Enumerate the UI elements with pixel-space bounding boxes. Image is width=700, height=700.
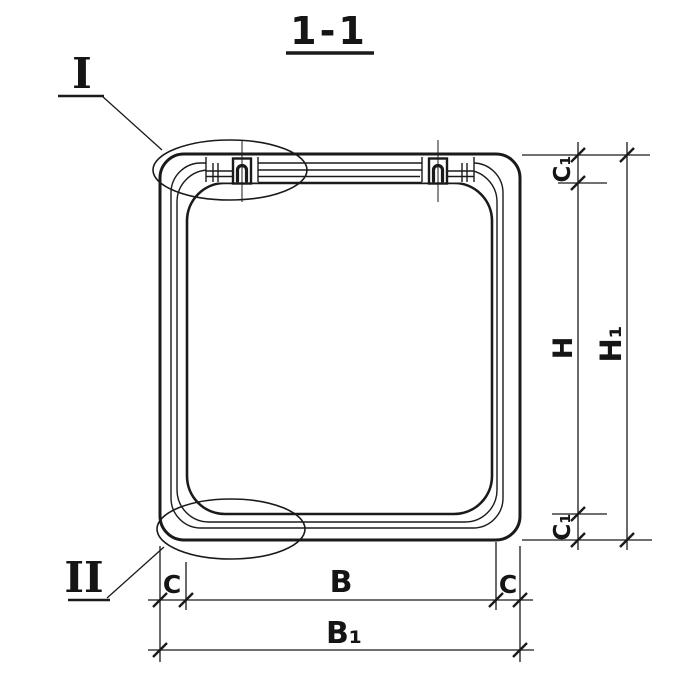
dim-label-c-left: C xyxy=(163,570,181,599)
dim-label-b: B xyxy=(330,565,353,600)
drawing-title-block: 1-1 xyxy=(286,9,374,53)
culvert-section-outline xyxy=(160,154,520,540)
dim-label-h: H xyxy=(548,337,579,360)
callout-leader-line xyxy=(102,96,162,150)
detail-label-I: I xyxy=(72,49,92,98)
detail-label-II: II xyxy=(64,553,103,602)
section-title: 1-1 xyxy=(290,9,368,53)
section-drawing-1-1: 1-1 I xyxy=(0,0,700,700)
dim-label-c1-top: C₁ xyxy=(550,156,576,183)
dimensions-bottom: C B C B₁ xyxy=(148,542,534,662)
outer-contour xyxy=(160,154,520,540)
callout-leader-line xyxy=(107,547,164,598)
drawing-sheet: 1-1 I xyxy=(0,0,700,700)
dim-label-h1: H₁ xyxy=(594,326,628,363)
dim-label-b1: B₁ xyxy=(326,616,362,651)
dim-label-c1-bottom: C₁ xyxy=(550,514,576,541)
dim-label-c-right: C xyxy=(499,570,517,599)
dimensions-right: C₁ H C₁ H₁ xyxy=(522,142,652,550)
